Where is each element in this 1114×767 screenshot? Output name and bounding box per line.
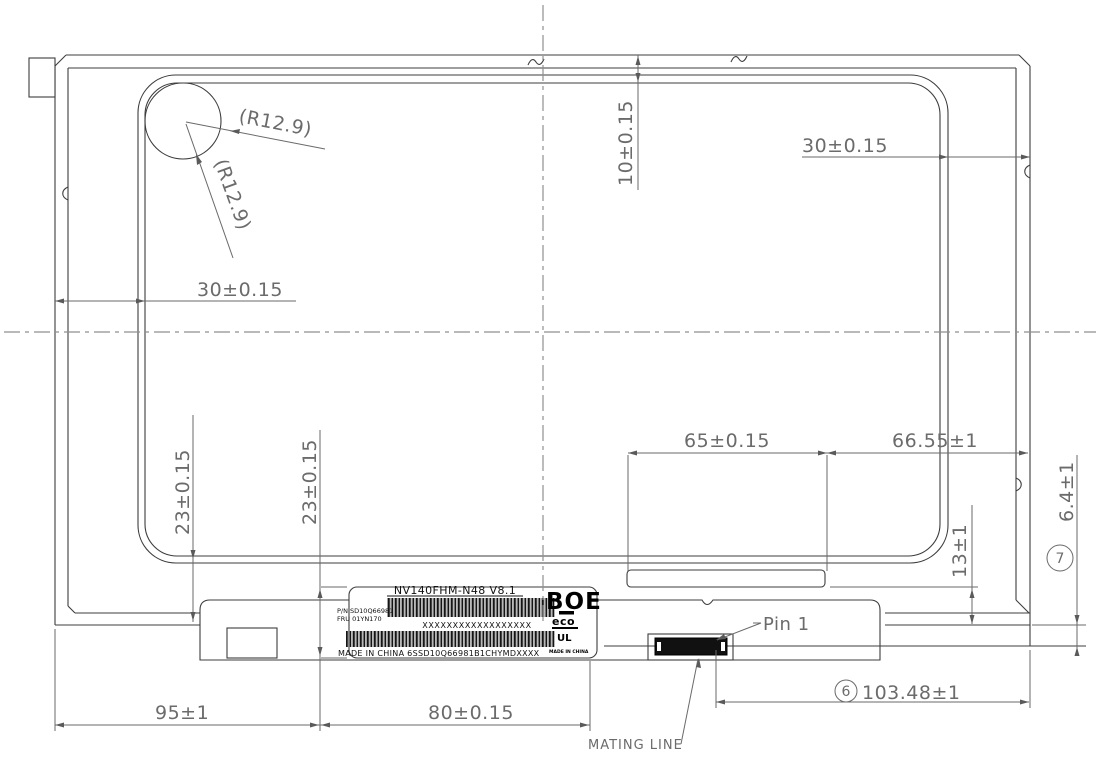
dim-pin1-label: Pin 1 [763, 614, 810, 635]
dim-right-bezel: 30±0.15 [802, 135, 888, 157]
barcode-bottom [346, 631, 555, 647]
engineering-drawing-lcd-rear-view: NV140FHM-N48 V8.1 P/N SD10Q66981 FRU 01Y… [0, 0, 1114, 767]
mounting-tab [29, 58, 55, 97]
dim-corner-radius-2: (R12.9) [209, 156, 255, 233]
dim-top-bezel: 10±0.15 [615, 100, 637, 186]
dim-bottom-left: 95±1 [155, 702, 209, 724]
eco-mark-bar [552, 627, 578, 629]
dim-left-bezel: 30±0.15 [197, 279, 283, 301]
note-7: 7 [1056, 551, 1065, 567]
dim-slot-to-edge: 66.55±1 [892, 430, 978, 452]
label-serial: XXXXXXXXXXXXXXXXXX [422, 621, 531, 630]
dim-mating-offset: 6.4±1 [1056, 461, 1078, 522]
barcode-top [387, 598, 555, 617]
corner-radius-circle [145, 83, 221, 159]
boe-logo-underline [559, 611, 574, 615]
centerlines [4, 5, 1096, 622]
dim-mating-line-label: MATING LINE [588, 738, 683, 753]
dim-corner-radius-1: (R12.9) [237, 105, 314, 141]
connector-pin-mark-right [721, 642, 725, 651]
break-marks [63, 56, 1030, 491]
label-origin-small: MADE IN CHINA [549, 649, 589, 655]
ul-mark-icon: UL [557, 633, 572, 644]
label-origin: MADE IN CHINA 6SSD10Q66981B1CHYMDXXXX [338, 649, 540, 658]
dim-active-bottom-1: 23±0.15 [172, 449, 194, 535]
dim-bottom-mid: 80±0.15 [428, 702, 514, 724]
dim-slot-width: 65±0.15 [684, 430, 770, 452]
dim-pin-to-edge: 103.48±1 [862, 682, 961, 704]
label-pn: P/N SD10Q66981 [337, 607, 393, 615]
dim-shelf-height: 13±1 [949, 524, 971, 578]
eco-mark-icon: eco [552, 615, 575, 628]
dim-active-bottom-2: 23±0.15 [299, 439, 321, 525]
connector-pin-mark-left [657, 642, 661, 651]
label-model: NV140FHM-N48 V8.1 [394, 584, 516, 597]
note-6: 6 [842, 684, 851, 700]
bottom-slot [627, 570, 825, 587]
label-fru: FRU 01YN170 [337, 615, 382, 623]
product-label: NV140FHM-N48 V8.1 P/N SD10Q66981 FRU 01Y… [337, 584, 602, 658]
drawing-canvas: NV140FHM-N48 V8.1 P/N SD10Q66981 FRU 01Y… [0, 0, 1114, 767]
